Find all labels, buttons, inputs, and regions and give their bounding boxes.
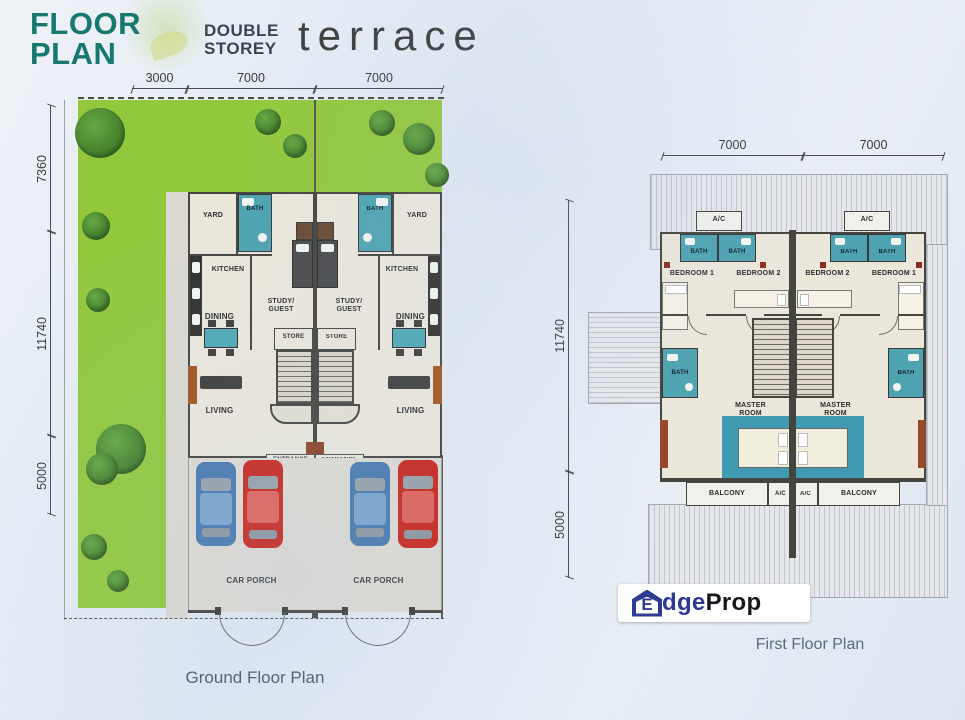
study-bed-icon bbox=[292, 240, 313, 288]
wardrobe-icon bbox=[296, 222, 313, 240]
chair-icon bbox=[226, 320, 234, 327]
ff-bedroom2-label: BEDROOM 2 bbox=[793, 270, 862, 278]
pillow-icon bbox=[296, 244, 309, 252]
bed-icon bbox=[898, 282, 924, 330]
ff-dim-top-7000-right: 7000 bbox=[803, 155, 944, 156]
gf-front-wall-left bbox=[412, 610, 442, 613]
tree-icon bbox=[425, 163, 449, 187]
gf-front-wall-right bbox=[315, 610, 345, 613]
gf-study-label: STUDY/ GUEST bbox=[316, 298, 382, 315]
gf-dim-left-11740: 11740 bbox=[50, 232, 51, 436]
toilet-icon bbox=[835, 238, 845, 245]
planter-box bbox=[918, 420, 926, 468]
gf-stairs bbox=[317, 350, 354, 404]
tree-icon bbox=[403, 123, 435, 155]
gate-swing-arc bbox=[219, 613, 253, 646]
ff-bath-label: BATH bbox=[830, 249, 868, 256]
title-storey: STOREY bbox=[204, 40, 277, 57]
chair-icon bbox=[414, 349, 422, 356]
chair-icon bbox=[414, 320, 422, 327]
ff-hall-wall bbox=[662, 314, 688, 316]
tree-icon bbox=[283, 134, 307, 158]
gf-bath-room bbox=[358, 194, 392, 252]
red-car-icon bbox=[243, 460, 283, 548]
pillow-icon bbox=[798, 433, 808, 447]
sink-icon bbox=[258, 233, 267, 242]
chair-icon bbox=[226, 349, 234, 356]
study-bed-icon bbox=[317, 240, 338, 288]
ff-bath-room bbox=[718, 234, 756, 262]
bathtub-icon bbox=[667, 354, 678, 361]
ff-bath-label: BATH bbox=[868, 249, 906, 256]
pillow-icon bbox=[665, 285, 687, 294]
ff-bath-room bbox=[830, 234, 868, 262]
gf-lot-left-line bbox=[64, 100, 65, 620]
bed-icon bbox=[662, 282, 688, 330]
blue-car-icon bbox=[196, 462, 236, 546]
gf-apron bbox=[166, 192, 188, 618]
tree-icon bbox=[86, 288, 110, 312]
ff-bath-label: BATH bbox=[680, 249, 718, 256]
tree-icon bbox=[81, 534, 107, 560]
ff-stairs bbox=[795, 318, 834, 398]
car-rear-window bbox=[249, 530, 277, 539]
dining-table-icon bbox=[392, 328, 426, 348]
gf-bath-label: BATH bbox=[358, 206, 392, 213]
car-roof bbox=[354, 493, 386, 525]
ff-hall-wall bbox=[764, 314, 791, 316]
ac-unit-icon bbox=[760, 262, 766, 268]
gf-front-wall-right bbox=[285, 610, 315, 613]
edgeprop-watermark: E dgeProp bbox=[618, 584, 810, 622]
bathtub-icon bbox=[242, 198, 254, 206]
bathtub-icon bbox=[908, 354, 919, 361]
ff-bedroom1-label: BEDROOM 1 bbox=[862, 270, 926, 278]
gf-yard-label: YARD bbox=[190, 212, 236, 220]
car-windshield bbox=[248, 476, 278, 489]
ff-ac-box-label: A/C bbox=[793, 491, 818, 498]
car-windshield bbox=[355, 478, 385, 491]
car-roof bbox=[247, 491, 279, 523]
pillow-icon bbox=[798, 451, 808, 465]
gf-yard-label: YARD bbox=[394, 212, 440, 220]
gf-dim-top-7000-left: 7000 bbox=[187, 88, 315, 89]
ground-floor-caption: Ground Floor Plan bbox=[160, 668, 350, 688]
planter-box bbox=[660, 420, 668, 468]
blue-car-icon bbox=[350, 462, 390, 546]
ff-hall-wall bbox=[795, 314, 822, 316]
gf-stairs bbox=[276, 350, 313, 404]
ff-party-wall bbox=[789, 230, 796, 558]
gate-swing-arc bbox=[345, 613, 379, 646]
ff-unit-left: A/C BATH BATH BEDROOM 1 BEDROOM 2 bbox=[660, 232, 793, 510]
gf-dining-label: DINING bbox=[188, 312, 251, 322]
gf-dim-left-5000: 5000 bbox=[50, 436, 51, 515]
car-roof bbox=[402, 491, 434, 523]
ff-bath-label: BATH bbox=[718, 249, 756, 256]
ff-front-wall bbox=[660, 478, 793, 481]
car-windshield bbox=[201, 478, 231, 491]
ff-balcony-label: BALCONY bbox=[686, 490, 768, 498]
sink-icon bbox=[192, 288, 200, 299]
ff-master-bath-label: BATH bbox=[662, 370, 698, 377]
edgeprop-house-icon: E bbox=[632, 590, 662, 617]
pillow-icon bbox=[800, 294, 809, 306]
gf-dim-top-3000: 3000 bbox=[132, 88, 187, 89]
gf-unit-left: YARD BATH KITCHEN STUDY/ GUEST DINING bbox=[188, 192, 315, 615]
gf-carporch-label: CAR PORCH bbox=[315, 576, 442, 586]
gf-yard-bottom-wall bbox=[190, 254, 272, 256]
ff-hall-wall bbox=[840, 314, 880, 316]
sofa-icon bbox=[388, 376, 430, 389]
gf-store-label: STORE bbox=[317, 334, 356, 341]
entrance-canopy bbox=[306, 442, 315, 454]
cabinet-icon bbox=[188, 366, 197, 404]
car-windshield bbox=[403, 476, 433, 489]
roof-left-eave bbox=[588, 312, 662, 404]
gf-dim-top-7000-right: 7000 bbox=[315, 88, 443, 89]
first-floor-caption: First Floor Plan bbox=[715, 636, 905, 654]
gf-bath-room bbox=[238, 194, 272, 252]
ff-ac-label: A/C bbox=[696, 216, 742, 224]
edgeprop-house-letter: E bbox=[636, 597, 658, 614]
ff-dim-left-11740: 11740 bbox=[568, 200, 569, 472]
toilet-icon bbox=[741, 238, 751, 245]
cabinet-icon bbox=[433, 366, 442, 404]
gf-living-label: LIVING bbox=[379, 406, 442, 416]
ff-bedroom1-label: BEDROOM 1 bbox=[660, 270, 724, 278]
gf-stair-landing bbox=[270, 404, 313, 424]
gf-dim-left-7360: 7360 bbox=[50, 105, 51, 232]
ac-unit-icon bbox=[916, 262, 922, 268]
gf-bath-label: BATH bbox=[238, 206, 272, 213]
pillow-icon bbox=[321, 244, 334, 252]
ff-front-wall bbox=[793, 478, 926, 481]
tree-icon bbox=[75, 108, 125, 158]
ff-unit-right: A/C BATH BATH BEDROOM 1 BEDROOM 2 bbox=[793, 232, 926, 510]
gf-living-label: LIVING bbox=[188, 406, 251, 416]
edgeprop-brand-dark: Prop bbox=[706, 589, 762, 617]
sink-icon bbox=[363, 233, 372, 242]
ff-stairs bbox=[752, 318, 791, 398]
ff-bath-room bbox=[680, 234, 718, 262]
tree-icon bbox=[369, 110, 395, 136]
floor-plan-page: FLOOR PLAN DOUBLE STOREY terrace 3000 70… bbox=[0, 0, 965, 720]
logo-floor: FLOOR bbox=[30, 8, 141, 39]
title-terrace: terrace bbox=[298, 12, 485, 60]
gf-lawn-side bbox=[78, 100, 166, 608]
master-bed-icon bbox=[738, 428, 791, 468]
gf-lot-top-fence bbox=[78, 97, 444, 99]
pillow-icon bbox=[778, 433, 788, 447]
pillow-icon bbox=[777, 294, 786, 306]
bed-icon bbox=[797, 290, 852, 308]
tree-icon bbox=[86, 453, 118, 485]
master-bed-icon bbox=[795, 428, 848, 468]
toilet-icon bbox=[891, 238, 901, 245]
tree-icon bbox=[107, 570, 129, 592]
ff-bath-room bbox=[868, 234, 906, 262]
gate-swing-arc bbox=[377, 613, 411, 646]
gf-yard-wall bbox=[392, 194, 394, 256]
gf-party-fence bbox=[314, 100, 316, 192]
sink-icon bbox=[685, 383, 693, 391]
car-rear-window bbox=[202, 528, 230, 537]
tree-icon bbox=[255, 109, 281, 135]
gf-front-wall-left bbox=[188, 610, 218, 613]
tree-icon bbox=[82, 212, 110, 240]
gf-study-label: STUDY/ GUEST bbox=[248, 298, 314, 315]
ff-dim-left-5000: 5000 bbox=[568, 472, 569, 578]
sink-icon bbox=[893, 383, 901, 391]
car-rear-window bbox=[356, 528, 384, 537]
chair-icon bbox=[208, 320, 216, 327]
ff-hall-wall bbox=[898, 314, 924, 316]
car-roof bbox=[200, 493, 232, 525]
gf-carporch-label: CAR PORCH bbox=[188, 576, 315, 586]
dining-table-icon bbox=[204, 328, 238, 348]
toilet-icon bbox=[685, 238, 695, 245]
ac-unit-icon bbox=[664, 262, 670, 268]
gf-store-label: STORE bbox=[274, 334, 313, 341]
logo-plan: PLAN bbox=[30, 38, 116, 69]
sink-icon bbox=[430, 288, 438, 299]
ff-bedroom2-label: BEDROOM 2 bbox=[724, 270, 793, 278]
sofa-icon bbox=[200, 376, 242, 389]
ff-ac-label: A/C bbox=[844, 216, 890, 224]
ff-master-bath-label: BATH bbox=[888, 370, 924, 377]
edgeprop-brand-blue: dge bbox=[662, 589, 706, 617]
ff-dim-top-7000-left: 7000 bbox=[662, 155, 803, 156]
gf-dining-label: DINING bbox=[379, 312, 442, 322]
car-rear-window bbox=[404, 530, 432, 539]
pillow-icon bbox=[778, 451, 788, 465]
gf-unit-right: YARD BATH KITCHEN STUDY/ GUEST DINING bbox=[315, 192, 442, 615]
title-double: DOUBLE bbox=[204, 22, 279, 39]
ff-hall-wall bbox=[706, 314, 746, 316]
pillow-icon bbox=[899, 285, 921, 294]
bathtub-icon bbox=[376, 198, 388, 206]
ac-unit-icon bbox=[820, 262, 826, 268]
gate-swing-arc bbox=[251, 613, 285, 646]
wardrobe-icon bbox=[317, 222, 334, 240]
chair-icon bbox=[396, 349, 404, 356]
ff-balcony-label: BALCONY bbox=[818, 490, 900, 498]
entrance-canopy bbox=[315, 442, 324, 454]
roof-right-eave bbox=[926, 244, 948, 506]
chair-icon bbox=[208, 349, 216, 356]
bed-icon bbox=[734, 290, 789, 308]
chair-icon bbox=[396, 320, 404, 327]
red-car-icon bbox=[398, 460, 438, 548]
